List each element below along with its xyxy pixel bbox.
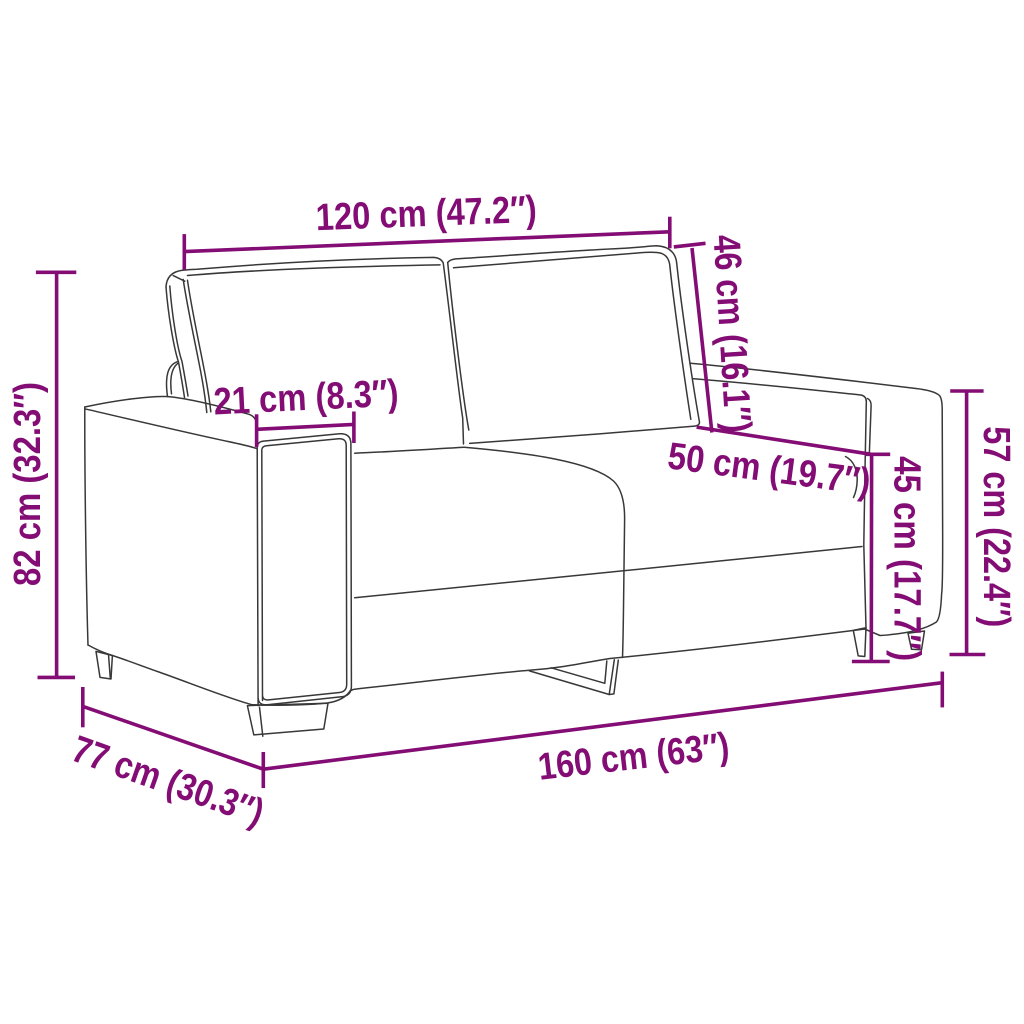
svg-text:57 cm (22.4″): 57 cm (22.4″) [975, 426, 1017, 627]
svg-text:160 cm (63″): 160 cm (63″) [536, 725, 732, 788]
svg-text:45 cm (17.7″): 45 cm (17.7″) [886, 456, 928, 661]
svg-text:46 cm (16.1″): 46 cm (16.1″) [705, 234, 759, 434]
svg-text:82 cm (32.3″): 82 cm (32.3″) [7, 382, 49, 586]
svg-text:50 cm (19.7″): 50 cm (19.7″) [665, 435, 873, 503]
svg-text:21 cm (8.3″): 21 cm (8.3″) [213, 373, 400, 424]
svg-text:77 cm (30.3″): 77 cm (30.3″) [66, 728, 269, 834]
svg-text:120 cm (47.2″): 120 cm (47.2″) [315, 189, 537, 239]
